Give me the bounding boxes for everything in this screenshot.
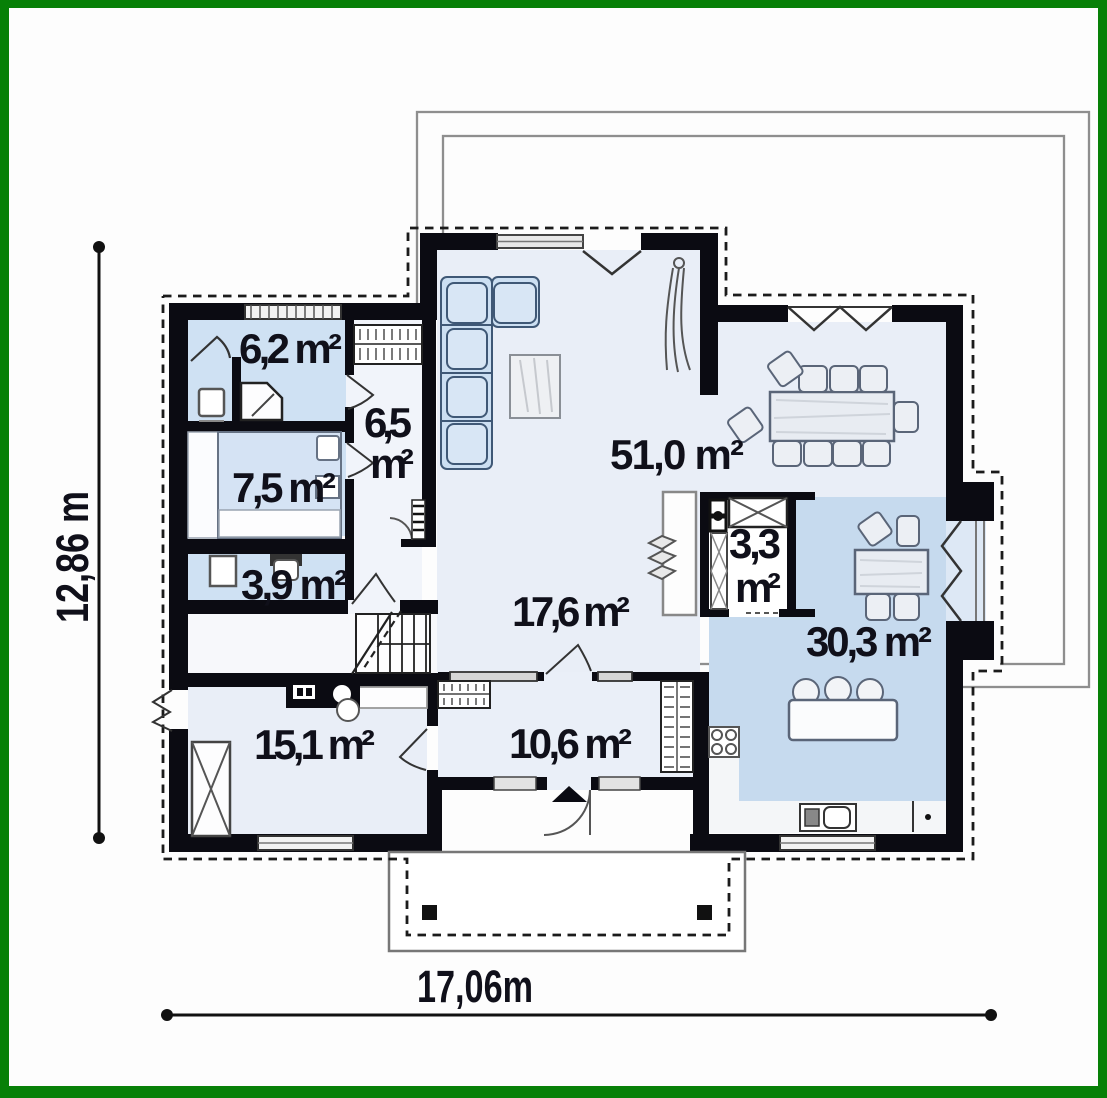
svg-text:17,06m: 17,06m (417, 961, 533, 1012)
svg-text:15,1 m²: 15,1 m² (254, 721, 375, 768)
svg-text:6,2 m²: 6,2 m² (239, 325, 342, 372)
svg-text:17,6 m²: 17,6 m² (512, 588, 630, 635)
svg-text:12,86 m: 12,86 m (47, 491, 98, 623)
svg-text:3,3: 3,3 (729, 520, 781, 567)
svg-text:51,0 m²: 51,0 m² (610, 431, 744, 478)
svg-text:6,5: 6,5 (364, 399, 412, 446)
svg-text:7,5 m²: 7,5 m² (232, 464, 336, 511)
svg-text:m²: m² (370, 440, 414, 487)
svg-text:3,9 m²: 3,9 m² (241, 561, 348, 608)
svg-text:30,3 m²: 30,3 m² (806, 618, 932, 665)
svg-text:m²: m² (735, 564, 781, 611)
svg-text:10,6 m²: 10,6 m² (509, 720, 632, 767)
